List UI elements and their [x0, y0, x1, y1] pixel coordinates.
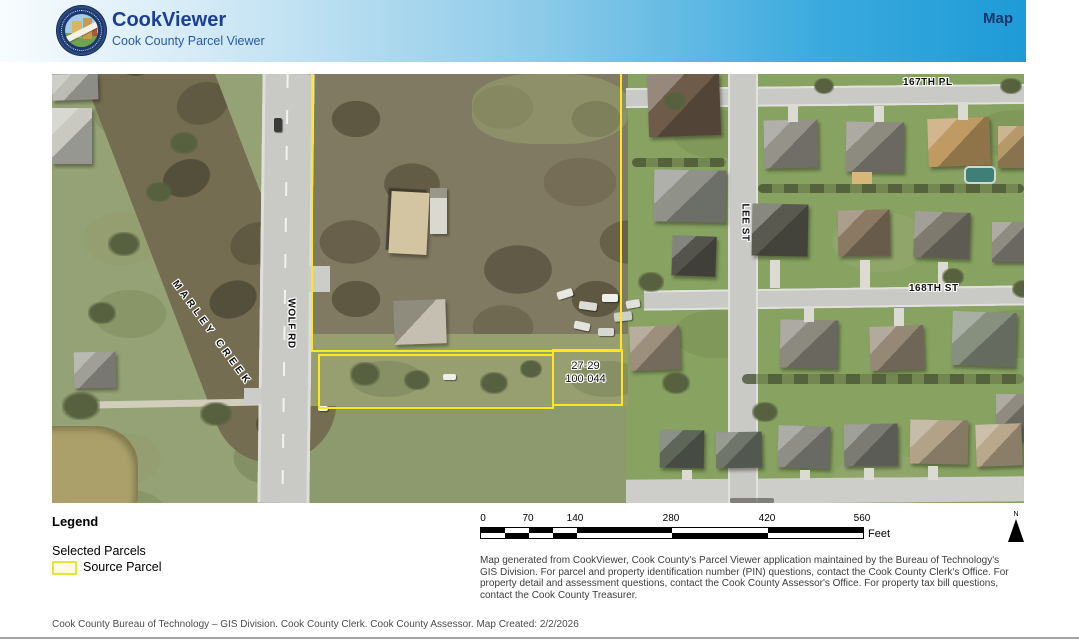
page-footer: Cook County Bureau of Technology – GIS D… — [52, 619, 579, 630]
app-header: CookViewer Cook County Parcel Viewer Map — [0, 0, 1026, 62]
scale-segment — [672, 533, 768, 538]
driveway — [800, 470, 810, 480]
tree — [664, 92, 686, 110]
hedge-row — [742, 374, 1024, 384]
building-roof — [752, 204, 809, 257]
driveway — [958, 102, 968, 120]
building-roof — [869, 325, 925, 371]
swimming-pool — [966, 168, 994, 182]
north-arrow-icon — [1008, 519, 1024, 542]
parcel-outline-large[interactable] — [311, 74, 622, 352]
legend-swatch-source-parcel — [52, 561, 77, 575]
seal-emblem — [65, 14, 98, 47]
tree — [108, 232, 140, 256]
bottom-divider — [0, 637, 1079, 639]
building-roof — [780, 319, 839, 368]
scale-unit-label: Feet — [868, 528, 890, 540]
tree — [62, 392, 100, 420]
aerial-pond — [52, 426, 138, 503]
street-label-167th-pl: 167TH PL — [903, 77, 953, 88]
tree — [1000, 78, 1022, 94]
nav-tab-map[interactable]: Map — [983, 10, 1013, 27]
tree — [814, 78, 834, 94]
building-roof — [913, 211, 971, 259]
scale-tick: 280 — [663, 513, 680, 524]
building-roof — [975, 423, 1022, 467]
driveway — [804, 306, 814, 322]
parcel-outline-strip[interactable] — [318, 354, 554, 409]
app-subtitle: Cook County Parcel Viewer — [112, 34, 265, 48]
tree — [638, 272, 664, 292]
tree — [1012, 280, 1024, 298]
parcel-pin-line1: 27-29 — [552, 360, 619, 373]
parcel-pin-label: 27-29 100-044 — [552, 360, 619, 386]
scale-tick: 0 — [480, 513, 486, 524]
tree — [752, 402, 778, 422]
scale-segment — [529, 533, 553, 538]
building-roof — [764, 120, 819, 169]
road-wolf-rd — [257, 74, 314, 503]
building-roof — [838, 210, 891, 257]
building-roof — [654, 169, 727, 222]
building-roof — [52, 108, 92, 164]
scale-segment — [505, 533, 529, 538]
parcel-pin-line2: 100-044 — [552, 373, 619, 386]
street-label-lee-st: LEE ST — [740, 198, 751, 248]
building-roof — [910, 419, 969, 464]
scale-bar-graphic — [480, 527, 864, 539]
building-roof — [716, 432, 763, 469]
driveway — [894, 308, 904, 326]
building-roof — [671, 235, 716, 277]
tree — [146, 182, 172, 202]
tree — [200, 402, 232, 426]
scale-tick: 140 — [567, 513, 584, 524]
street-label-clipped — [730, 498, 774, 503]
driveway — [928, 466, 938, 480]
driveway — [788, 104, 798, 122]
scale-bar: 0 70 140 280 420 560 Feet — [480, 513, 890, 543]
street-label-168th-st: 168TH ST — [909, 283, 959, 294]
tree — [662, 372, 690, 394]
app-title: CookViewer — [112, 9, 226, 32]
tree — [170, 132, 198, 154]
driveway — [864, 468, 874, 480]
deck — [852, 172, 872, 184]
building-roof — [777, 425, 830, 469]
building-roof — [927, 117, 991, 167]
scale-tick: 560 — [854, 513, 871, 524]
scale-segment — [481, 533, 505, 538]
hedge-row — [758, 184, 1024, 193]
building-roof — [629, 325, 681, 371]
scale-segment — [577, 533, 673, 538]
building-roof — [52, 74, 98, 101]
driveway — [860, 260, 870, 288]
cook-county-seal-logo — [57, 6, 106, 55]
driveway — [770, 260, 780, 288]
scale-bar-row — [481, 533, 863, 538]
tree — [88, 302, 116, 324]
street-label-wolf-rd: WOLF RD — [286, 291, 297, 357]
scale-segment — [768, 533, 864, 538]
legend-item-label: Source Parcel — [83, 560, 162, 574]
building-roof — [951, 311, 1017, 367]
map-canvas[interactable]: 167TH PL 168TH ST LEE ST WOLF RD MARLEY … — [52, 74, 1024, 503]
legend-group-label: Selected Parcels — [52, 544, 146, 558]
legend-title: Legend — [52, 514, 98, 529]
building-roof — [998, 126, 1024, 168]
scale-tick: 70 — [522, 513, 533, 524]
building-roof — [74, 352, 117, 389]
hedge-row — [632, 158, 726, 167]
scale-segment — [553, 533, 577, 538]
north-arrow-label: N — [1004, 511, 1028, 518]
road-south — [626, 476, 1024, 503]
scale-tick: 420 — [759, 513, 776, 524]
building-roof — [992, 222, 1024, 262]
driveway — [682, 470, 692, 480]
north-arrow: N — [1004, 511, 1028, 542]
building-roof — [660, 430, 705, 469]
vehicle — [274, 118, 282, 132]
driveway — [874, 106, 884, 122]
building-roof — [846, 121, 905, 172]
map-disclaimer: Map generated from CookViewer, Cook Coun… — [480, 555, 1015, 601]
building-roof — [844, 424, 899, 467]
